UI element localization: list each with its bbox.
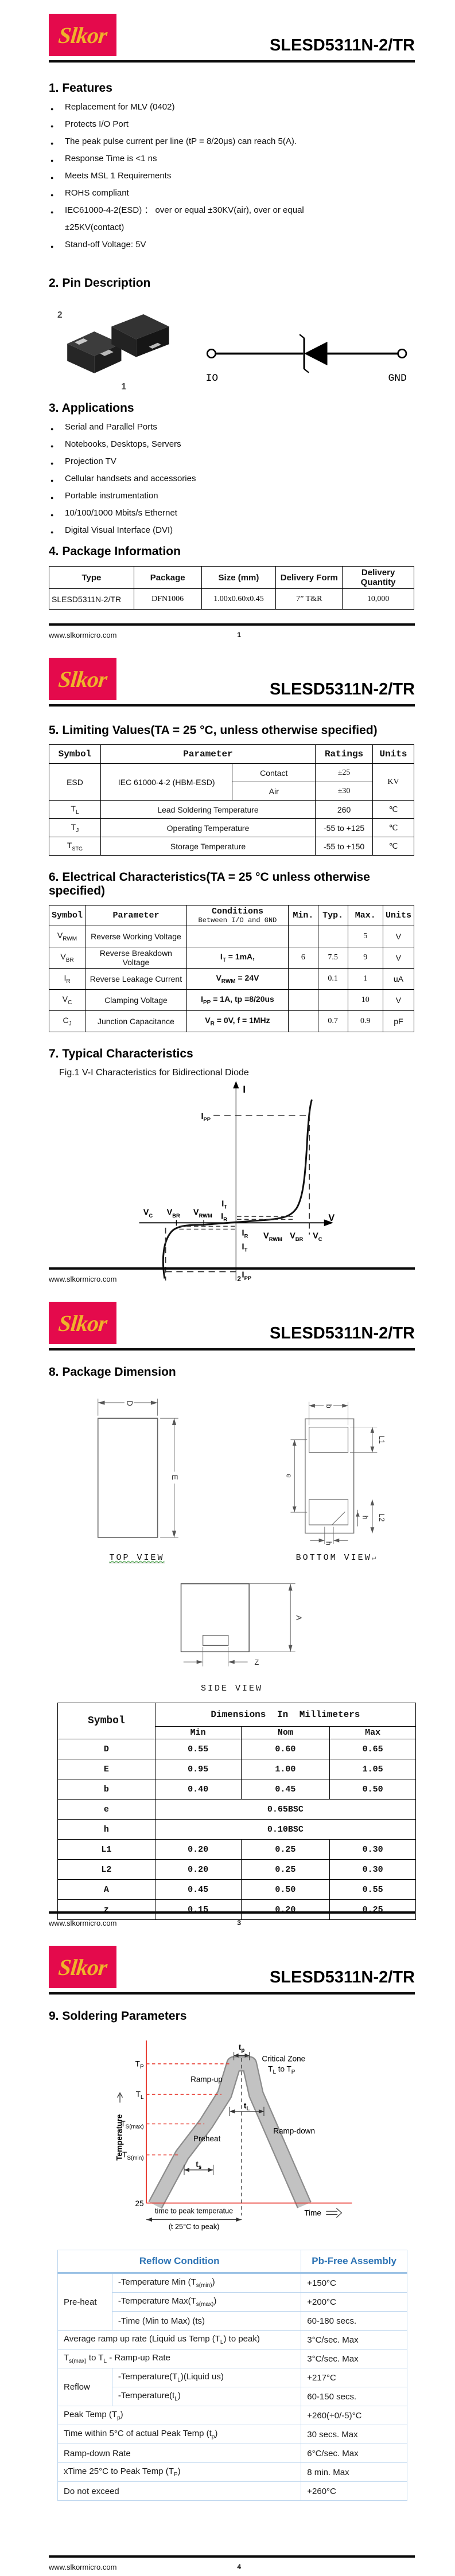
cell: [289, 969, 318, 990]
cell: 0.7: [318, 1011, 348, 1032]
t: ) to peak): [223, 2334, 259, 2344]
t: ): [178, 2466, 181, 2476]
list-item: Serial and Parallel Ports: [49, 422, 415, 432]
dimension-heading: 8. Package Dimension: [49, 1365, 415, 1379]
col-header: Nom: [241, 1727, 330, 1739]
chamfer-line: [332, 1512, 345, 1525]
dim-label-b: b: [325, 1404, 333, 1408]
table-row: L10.200.250.30: [58, 1840, 416, 1860]
brand-logo-text: Slkor: [57, 666, 108, 693]
t: -Temperature(T: [118, 2372, 177, 2382]
io-terminal: [207, 349, 215, 357]
symbol-cell: VBR: [49, 947, 85, 969]
time-to-peak-label: time to peak temperatue: [155, 2207, 233, 2215]
cond-sub: RWM: [221, 978, 236, 985]
temperature-axis-label: Temperature: [115, 2114, 124, 2160]
t: T: [136, 2090, 141, 2099]
cell: -Temperature(tL): [112, 2387, 301, 2406]
page-2: Slkor SLESD5311N-2/TR 5. Limiting Values…: [0, 644, 455, 1288]
list-item: ROHS compliant: [49, 188, 415, 198]
dim-label-h2: h: [324, 1541, 333, 1545]
arrow: [196, 1660, 203, 1664]
cell: V: [383, 947, 414, 969]
arrow: [98, 1400, 105, 1404]
cell: 0.1: [318, 969, 348, 990]
cell: Average ramp up rate (Liquid us Temp (TL…: [58, 2331, 301, 2349]
t: s(min): [196, 2282, 212, 2289]
preheat-label: Preheat: [193, 2134, 221, 2143]
cell: IEC 61000-4-2 (HBM-ESD): [100, 764, 232, 801]
cell: 1.05: [330, 1759, 416, 1779]
t: ): [120, 2410, 123, 2419]
table-row: L20.200.250.30: [58, 1860, 416, 1880]
arrow: [333, 1539, 339, 1543]
cond-rest: = 0V, f = 1MHz: [215, 1016, 270, 1025]
symbol-sub: STG: [72, 846, 83, 852]
footer-row: www.slkormicro.com 2: [49, 1275, 415, 1283]
cond-cell: [186, 926, 288, 947]
list-item: The peak pulse current per line (tP = 8/…: [49, 136, 415, 147]
cell: 7.5: [318, 947, 348, 969]
cell: [318, 926, 348, 947]
table-row: Average ramp up rate (Liquid us Temp (TL…: [58, 2331, 407, 2349]
cell: -Temperature(TL)(Liquid us): [112, 2368, 301, 2387]
t: V: [313, 1232, 318, 1241]
cell: 9: [348, 947, 383, 969]
ir-right-label: IR: [242, 1228, 248, 1239]
cell: -Temperature Max(Ts(max)): [112, 2293, 301, 2312]
list-item: 10/100/1000 Mbits/s Ethernet: [49, 508, 415, 518]
t: )(Liquid us): [181, 2372, 224, 2382]
gnd-terminal: [398, 349, 406, 357]
value-cell: 6°C/sec. Max: [301, 2444, 407, 2463]
table-row: Time within 5°C of actual Peak Temp (tp)…: [58, 2425, 407, 2444]
t: T: [268, 2064, 273, 2073]
cell: 0.25: [241, 1860, 330, 1880]
group-cell: Reflow: [58, 2368, 112, 2406]
symbol-sub: J: [69, 1021, 72, 1027]
dim-label-D: D: [125, 1400, 134, 1406]
cell: 1.00x0.60x0.45: [201, 589, 276, 610]
t: C: [149, 1213, 153, 1219]
cell: 0.40: [155, 1779, 241, 1800]
cond-rest: = 1A, tp =8/20us: [211, 994, 274, 1004]
arrow: [230, 2109, 235, 2113]
table-row: xTime 25°C to Peak Temp (TP) 8 min. Max: [58, 2463, 407, 2482]
vbr-right-label: VBR: [290, 1232, 303, 1242]
col-header: Min.: [289, 905, 318, 926]
table-row: TJ Operating Temperature -55 to +125 ℃: [49, 819, 414, 837]
dim-label-L1: L1: [378, 1436, 386, 1444]
cond-cell: VRWM = 24V: [186, 969, 288, 990]
cell: DFN1006: [134, 589, 201, 610]
cell: 6: [289, 947, 318, 969]
symbol-cell: IR: [49, 969, 85, 990]
cell: 0.20: [155, 1840, 241, 1860]
t: -Temperature(t: [118, 2391, 174, 2401]
list-item: Response Time is <1 ns: [49, 154, 415, 164]
table-row: Ramp-down Rate 6°C/sec. Max: [58, 2444, 407, 2463]
value-cell: 60-150 secs.: [301, 2387, 407, 2406]
cell: uA: [383, 969, 414, 990]
footer-row: www.slkormicro.com 4: [49, 2563, 415, 2571]
i-axis-arrow: [233, 1081, 239, 1088]
t: xTime 25°C to Peak Temp (T: [64, 2466, 174, 2476]
t: L: [246, 2106, 250, 2112]
table-row: Ts(max) to TL - Ramp-up Rate 3°C/sec. Ma…: [58, 2349, 407, 2368]
brand-logo-text: Slkor: [57, 22, 108, 49]
brand-logo: Slkor: [49, 658, 116, 700]
t: P: [291, 2069, 295, 2075]
col-header: Delivery Form: [276, 567, 343, 589]
table-row: VRWM Reverse Working Voltage 5 V: [49, 926, 414, 947]
table-row: A0.450.500.55: [58, 1880, 416, 1900]
cell: 0.50: [330, 1779, 416, 1800]
cell: 0.10BSC: [155, 1820, 415, 1840]
page-3: Slkor SLESD5311N-2/TR 8. Package Dimensi…: [0, 1288, 455, 1932]
doc-title: SLESD5311N-2/TR: [270, 680, 415, 700]
header-rule: [49, 704, 415, 707]
col-header: Size (mm): [201, 567, 276, 589]
cell: Storage Temperature: [100, 837, 315, 856]
list-item: Meets MSL 1 Requirements: [49, 171, 415, 181]
page-footer: www.slkormicro.com 2: [49, 1267, 415, 1283]
t: S(max): [126, 2124, 144, 2130]
table-row: D0.550.600.65: [58, 1739, 416, 1759]
cond-sub: PP: [203, 1000, 211, 1006]
arrow: [208, 2168, 213, 2172]
arrow: [319, 1539, 325, 1543]
col-header: Pb-Free Assembly: [301, 2250, 407, 2273]
cell: [289, 926, 318, 947]
col-header-conditions: Conditions Between I/O and GND: [186, 905, 288, 926]
it-right-label: IT: [242, 1242, 247, 1252]
package-info-table: Type Package Size (mm) Delivery Form Del…: [49, 566, 414, 610]
cell: 0.95: [155, 1759, 241, 1779]
cell: Junction Capacitance: [85, 1011, 187, 1032]
electrical-heading: 6. Electrical Characteristics(TA = 25 °C…: [49, 871, 415, 898]
symbol-main: V: [57, 931, 63, 940]
cell: 0.9: [348, 1011, 383, 1032]
cell: e: [58, 1800, 155, 1820]
top-view-label: TOP VIEW: [109, 1553, 164, 1563]
top-view-drawing: D E: [75, 1387, 199, 1548]
vbr-left-label: VBR: [166, 1208, 180, 1219]
value-cell: 60-180 secs.: [301, 2312, 407, 2331]
t: T: [64, 2353, 69, 2363]
cell: 7” T&R: [276, 589, 343, 610]
t: Do not exceed: [64, 2487, 119, 2496]
bottom-view-outline: [305, 1419, 354, 1533]
cell: 0.30: [330, 1860, 416, 1880]
cell: ESD: [49, 764, 101, 801]
symbol-main: V: [60, 952, 65, 961]
cell: 1.00: [241, 1759, 330, 1779]
value-cell: +260°C: [301, 2482, 407, 2501]
cell: Do not exceed: [58, 2482, 301, 2501]
page-footer: www.slkormicro.com 3: [49, 1911, 415, 1927]
ramp-down-label: Ramp-down: [273, 2127, 315, 2136]
time-arrow-head: [336, 2208, 341, 2218]
arrow: [172, 1531, 176, 1537]
bottom-view-block: b L1 e h: [276, 1387, 398, 1563]
dim-label-Z: Z: [254, 1658, 259, 1666]
symbol-cell: VRWM: [49, 926, 85, 947]
value-cell: 3°C/sec. Max: [301, 2331, 407, 2349]
value-cell: 3°C/sec. Max: [301, 2349, 407, 2368]
vc-left-label: VC: [143, 1208, 153, 1219]
header-rule: [49, 60, 415, 63]
table-row: h0.10BSC: [58, 1820, 416, 1840]
pin2-label: 2: [57, 310, 63, 320]
cell: 10,000: [343, 589, 414, 610]
arrow: [371, 1447, 375, 1453]
cell: D: [58, 1739, 155, 1759]
cond-main: V: [216, 973, 221, 982]
header-rule: [49, 1992, 415, 1995]
value-cell: +217°C: [301, 2368, 407, 2387]
vrwm-left-label: VRWM: [193, 1208, 212, 1219]
t: Time within 5°C of actual Peak Temp (t: [64, 2429, 212, 2438]
top-view-label-wrap: TOP VIEW: [75, 1553, 199, 1563]
Tsmin-label: TS(min): [122, 2150, 143, 2161]
col-header: Dimensions In Millimeters: [155, 1703, 415, 1727]
it-label: IT: [221, 1199, 227, 1209]
col-header: Symbol: [49, 905, 85, 926]
page-header: Slkor SLESD5311N-2/TR: [49, 1288, 415, 1344]
tp-small-label: tp: [239, 2043, 245, 2054]
pin-description-heading: 2. Pin Description: [49, 276, 415, 290]
table-row: CJ Junction Capacitance VR = 0V, f = 1MH…: [49, 1011, 414, 1032]
cell: L1: [58, 1840, 155, 1860]
io-label: IO: [205, 373, 218, 384]
brand-logo: Slkor: [49, 14, 116, 56]
cell: Time within 5°C of actual Peak Temp (tp): [58, 2425, 301, 2444]
features-list: Replacement for MLV (0402) Protects I/O …: [49, 102, 415, 250]
symbol-main: C: [63, 1016, 68, 1025]
symbol-cell: TJ: [49, 819, 101, 837]
footer-website: www.slkormicro.com: [49, 1919, 213, 1927]
top-view-outline: [98, 1418, 158, 1537]
col-header: Reflow Condition: [58, 2250, 301, 2273]
list-item: Digital Visual Interface (DVI): [49, 525, 415, 536]
cell: 0.55: [155, 1739, 241, 1759]
footer-rule: [49, 623, 415, 626]
t: L: [141, 2094, 144, 2101]
cell: -55 to +150: [316, 837, 373, 856]
gnd-label: GND: [388, 373, 406, 384]
side-view-drawing: A Z: [145, 1567, 320, 1679]
list-item: Stand-off Voltage: 5V: [49, 240, 415, 250]
ir-label: IR: [221, 1212, 227, 1222]
header-rule: [49, 1348, 415, 1351]
cell: b: [58, 1779, 155, 1800]
side-view-label: SIDE VIEW: [49, 1684, 415, 1693]
symbol-cell: CJ: [49, 1011, 85, 1032]
arrow: [288, 1645, 292, 1652]
side-view-bump: [203, 1636, 228, 1646]
cell: ±30: [316, 782, 373, 801]
footer-row: www.slkormicro.com 3: [49, 1919, 415, 1927]
col-header: Max.: [348, 905, 383, 926]
list-item: IEC61000-4-2(ESD) ： over or equal ±30KV(…: [49, 205, 415, 216]
t: V: [166, 1208, 172, 1217]
limiting-heading: 5. Limiting Values(TA = 25 °C, unless ot…: [49, 724, 415, 737]
t: to T: [276, 2064, 291, 2073]
cond-cell: VR = 0V, f = 1MHz: [186, 1011, 288, 1032]
cell: Air: [232, 782, 316, 801]
value-cell: +260(+0/-5)°C: [301, 2406, 407, 2425]
t: ): [215, 2429, 217, 2438]
top-view-block: D E TOP VIEW: [75, 1387, 199, 1563]
critical-zone-label: Critical Zone: [262, 2054, 305, 2063]
applications-heading: 3. Applications: [49, 401, 415, 415]
t: T: [244, 1247, 247, 1253]
page-number: 2: [213, 1275, 265, 1283]
cond-main: V: [205, 1016, 210, 1025]
col-header: Delivery Quantity: [343, 567, 414, 589]
cell: 0.50: [241, 1880, 330, 1900]
t: Peak Temp (T: [64, 2410, 117, 2419]
cell: 0.65: [330, 1739, 416, 1759]
arrow: [288, 1584, 292, 1591]
ramp-up-label: Ramp-up: [190, 2075, 223, 2083]
cell: ±25: [316, 764, 373, 782]
col-header: Symbol: [58, 1703, 155, 1739]
list-item: Replacement for MLV (0402): [49, 102, 415, 112]
cell: V: [383, 990, 414, 1011]
typical-heading: 7. Typical Characteristics: [49, 1047, 415, 1061]
cell: Reverse Working Voltage: [85, 926, 187, 947]
group-cell: Pre-heat: [58, 2273, 112, 2331]
brand-logo: Slkor: [49, 1946, 116, 1988]
ts-time-label: ts: [196, 2160, 202, 2171]
cell: 1: [348, 969, 383, 990]
cell: 10: [348, 990, 383, 1011]
table-row: Pre-heat -Temperature Min (Ts(min)) +150…: [58, 2273, 407, 2293]
table-row: ESD IEC 61000-4-2 (HBM-ESD) Contact ±25 …: [49, 764, 414, 782]
applications-list: Serial and Parallel Ports Notebooks, Des…: [49, 422, 415, 536]
cell: 0.30: [330, 1840, 416, 1860]
soldering-heading: 9. Soldering Parameters: [49, 2009, 415, 2023]
conditions-title: Conditions: [189, 907, 286, 916]
table-row: VC Clamping Voltage IPP = 1A, tp =8/20us…: [49, 990, 414, 1011]
t: ): [212, 2277, 215, 2287]
electrical-table: Symbol Parameter Conditions Between I/O …: [49, 905, 414, 1032]
table-row: Reflow -Temperature(TL)(Liquid us) +217°…: [58, 2368, 407, 2387]
col-header: Units: [373, 745, 414, 764]
t: PP: [203, 1117, 211, 1122]
cell: -Time (Min to Max) (ts): [112, 2312, 301, 2331]
page-number: 1: [213, 631, 265, 639]
dim-label-E: E: [170, 1475, 179, 1480]
cell: [289, 1011, 318, 1032]
value-cell: 8 min. Max: [301, 2463, 407, 2482]
t: R: [223, 1217, 227, 1223]
doc-title: SLESD5311N-2/TR: [270, 36, 415, 56]
cell: -55 to +125: [316, 819, 373, 837]
t: T: [135, 2059, 140, 2068]
cell: Lead Soldering Temperature: [100, 801, 315, 819]
list-item: Notebooks, Desktops, Servers: [49, 439, 415, 450]
vrwm-right-label: VRWM: [263, 1232, 282, 1242]
arrow: [356, 1512, 360, 1516]
t: V: [193, 1208, 199, 1217]
cell: 0.60: [241, 1739, 330, 1759]
tl-time-label: tL: [244, 2101, 250, 2112]
bottom-view-drawing: b L1 e h: [276, 1387, 398, 1548]
t: ): [213, 2296, 216, 2306]
symbol-sub: J: [76, 827, 79, 833]
t: s(max): [69, 2358, 87, 2364]
cond-cell: IPP = 1A, tp =8/20us: [186, 990, 288, 1011]
list-item: Projection TV: [49, 456, 415, 467]
t: - Ramp-up Rate: [107, 2353, 170, 2363]
table-row: b0.400.450.50: [58, 1779, 416, 1800]
reflow-profile-wrap: tp Critical Zone TL to TP Ramp-up tL Pre…: [49, 2031, 415, 2236]
symbol-main: V: [63, 994, 68, 1004]
vi-characteristics-chart: I V IPP IT IR VC VBR VRWM IR: [125, 1078, 340, 1283]
footer-row: www.slkormicro.com 1: [49, 631, 415, 639]
dimensions-table: Symbol Dimensions In Millimeters Min Nom…: [57, 1703, 416, 1920]
Tp-label: TP: [135, 2059, 144, 2070]
vi-curve: [163, 1100, 312, 1279]
side-view-block: A Z SIDE VIEW: [49, 1567, 415, 1693]
page-header: Slkor SLESD5311N-2/TR: [49, 1932, 415, 1988]
cell: [289, 990, 318, 1011]
Tl-label: TL: [136, 2090, 144, 2101]
cell: [318, 990, 348, 1011]
pin-description-figure: 2 1 IO GN: [49, 297, 415, 400]
symbol-sub: R: [66, 978, 70, 985]
page-4-content: Slkor SLESD5311N-2/TR 9. Soldering Param…: [0, 1932, 455, 2501]
cell: Clamping Voltage: [85, 990, 187, 1011]
arrow: [371, 1500, 375, 1505]
package-views: D E TOP VIEW: [49, 1387, 415, 1563]
symbol-cell: TSTG: [49, 837, 101, 856]
cell: pF: [383, 1011, 414, 1032]
table-header-row: Type Package Size (mm) Delivery Form Del…: [49, 567, 414, 589]
arrow: [293, 1440, 297, 1446]
cell: KV: [373, 764, 414, 801]
brand-logo: Slkor: [49, 1302, 116, 1344]
footer-website: www.slkormicro.com: [49, 2563, 213, 2571]
t: P: [174, 2472, 178, 2478]
t: ): [178, 2391, 181, 2401]
t: P: [140, 2064, 144, 2070]
arrow: [151, 1400, 158, 1404]
arrow: [293, 1506, 297, 1512]
dim-label-A: A: [294, 1615, 302, 1621]
page-1: Slkor SLESD5311N-2/TR 1. Features Replac…: [0, 0, 455, 644]
symbol-sub: BR: [66, 957, 74, 963]
cell: Reverse Leakage Current: [85, 969, 187, 990]
side-view-outline: [181, 1584, 249, 1652]
critical-zone-range: TL to TP: [268, 2064, 295, 2075]
footer-website: www.slkormicro.com: [49, 1275, 213, 1283]
footer-website: www.slkormicro.com: [49, 631, 213, 639]
cell: h: [58, 1820, 155, 1840]
table-header-row: Symbol Dimensions In Millimeters: [58, 1703, 416, 1727]
dim-label-e: e: [285, 1474, 294, 1478]
diode-schematic: IO GND: [199, 329, 415, 389]
page-1-content: Slkor SLESD5311N-2/TR 1. Features Replac…: [0, 0, 455, 610]
table-row: Peak Temp (Tp) +260(+0/-5)°C: [58, 2406, 407, 2425]
ipp-label: IPP: [201, 1112, 211, 1122]
page-header: Slkor SLESD5311N-2/TR: [49, 644, 415, 700]
table-row: SLESD5311N-2/TR DFN1006 1.00x0.60x0.45 7…: [49, 589, 414, 610]
arrow: [184, 2168, 189, 2172]
